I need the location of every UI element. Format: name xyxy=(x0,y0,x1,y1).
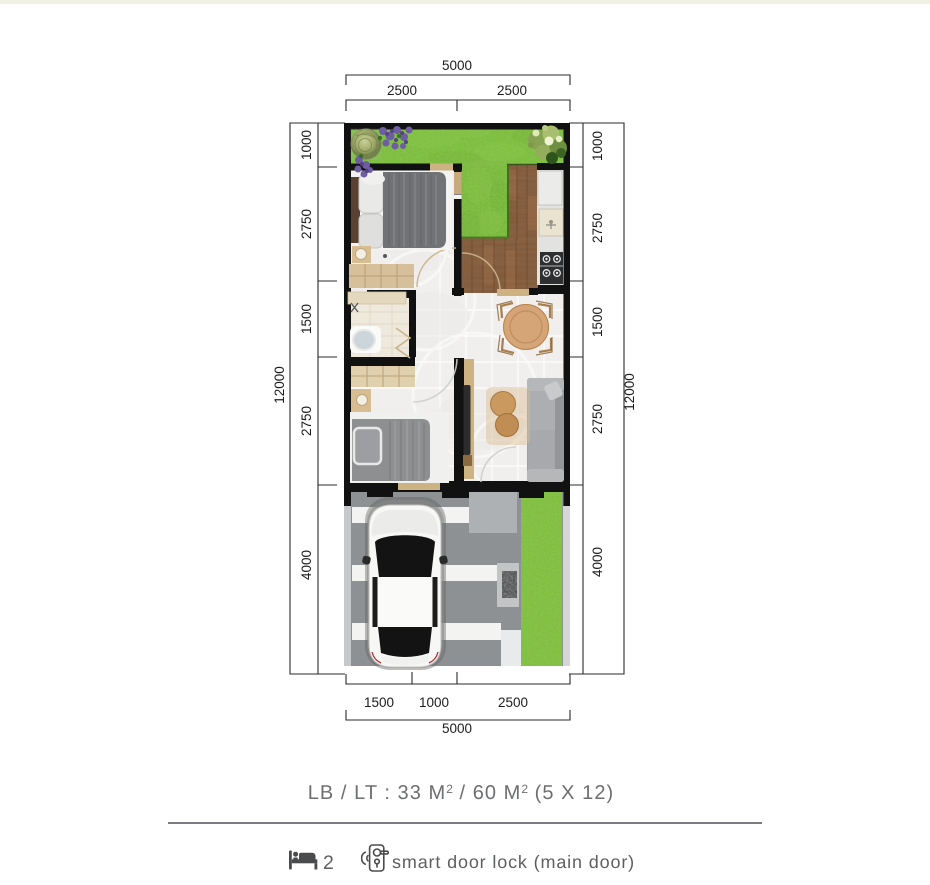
svg-text:1000: 1000 xyxy=(590,131,605,161)
svg-text:5000: 5000 xyxy=(442,58,472,73)
svg-text:12000: 12000 xyxy=(622,373,637,411)
svg-text:2750: 2750 xyxy=(299,406,314,436)
svg-text:2500: 2500 xyxy=(387,83,417,98)
svg-text:1000: 1000 xyxy=(419,695,449,710)
svg-text:4000: 4000 xyxy=(299,550,314,580)
svg-text:1500: 1500 xyxy=(299,304,314,334)
svg-text:2500: 2500 xyxy=(498,695,528,710)
svg-text:2750: 2750 xyxy=(590,213,605,243)
svg-text:12000: 12000 xyxy=(272,366,287,404)
svg-text:2750: 2750 xyxy=(299,209,314,239)
svg-text:5000: 5000 xyxy=(442,721,472,736)
svg-text:4000: 4000 xyxy=(590,547,605,577)
svg-text:2750: 2750 xyxy=(590,404,605,434)
svg-text:2500: 2500 xyxy=(497,83,527,98)
svg-text:1500: 1500 xyxy=(590,307,605,337)
svg-text:1000: 1000 xyxy=(299,130,314,160)
svg-text:1500: 1500 xyxy=(364,695,394,710)
